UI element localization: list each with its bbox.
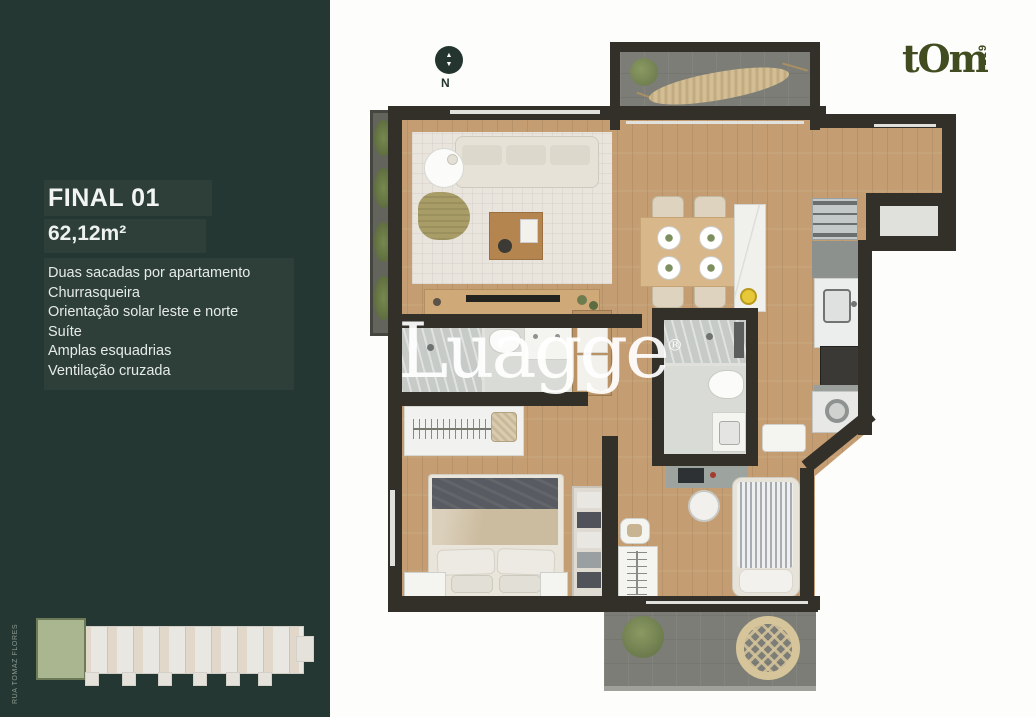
compass-north-label: N [441, 76, 450, 90]
coffee-table [489, 212, 543, 260]
closet-rod [413, 428, 497, 430]
feature-item: Duas sacadas por apartamento [48, 264, 308, 284]
registered-mark: ® [667, 336, 683, 355]
balcony-glass-rail [646, 601, 808, 604]
watermark-text: Luagge [398, 306, 667, 395]
closet-basket [491, 412, 517, 442]
table-decor [498, 239, 512, 253]
left-info-panel: FINAL 01 62,12m² Duas sacadas por aparta… [0, 0, 330, 717]
sofa-cushion [506, 145, 546, 165]
wall [746, 308, 758, 466]
window [880, 206, 938, 236]
place-setting [699, 256, 723, 280]
place-setting [657, 226, 681, 250]
balcony-plant [622, 616, 664, 658]
table-books [520, 219, 538, 243]
shower-head [706, 333, 713, 340]
striped-duvet [737, 482, 793, 568]
laptop [678, 468, 704, 483]
floorplan-sheet: FINAL 01 62,12m² Duas sacadas por aparta… [0, 0, 1036, 717]
keyplan-balcony [122, 672, 136, 686]
nightstand [404, 572, 446, 599]
dining-table [640, 217, 738, 287]
open-shelf-unit [572, 486, 606, 598]
shelf-item [577, 572, 601, 588]
window [390, 490, 395, 566]
window [450, 110, 600, 114]
oven-stack [812, 198, 858, 240]
place-setting [657, 256, 681, 280]
bed-pillow [739, 569, 793, 593]
fridge [812, 241, 858, 278]
shelf-item [577, 552, 601, 568]
feature-item: Amplas esquadrias [48, 342, 308, 362]
closet [404, 406, 524, 456]
wall [800, 468, 814, 604]
single-bed [732, 477, 800, 597]
side-table-decor [447, 154, 458, 165]
social-toilet [708, 370, 744, 399]
street-label: RUA TOMAZ FLORES [12, 612, 26, 704]
compass-icon: ▲▼ [435, 46, 463, 74]
tv [466, 295, 560, 302]
vanity-sink [719, 421, 740, 445]
keyplan-balcony [226, 672, 240, 686]
bed-cushion [451, 575, 493, 593]
feature-list: Duas sacadas por apartamento Churrasquei… [48, 264, 308, 381]
keyplan-highlighted-unit [36, 618, 86, 680]
clothes-rack [618, 546, 658, 600]
wall [602, 436, 618, 610]
desk-decor [710, 472, 716, 478]
wall [652, 454, 758, 466]
brand-logo: tOm [902, 36, 987, 81]
shelf-item [577, 492, 601, 508]
side-table [424, 148, 464, 188]
feature-item: Ventilação cruzada [48, 362, 308, 382]
potted-plant [630, 58, 658, 86]
keyplan-balcony [158, 672, 172, 686]
fruit-bowl [740, 288, 757, 305]
keyplan-end-stub [296, 636, 314, 662]
chair-seat [627, 524, 642, 537]
developer-watermark: Luagge® [398, 306, 683, 395]
desk-chair [688, 490, 720, 522]
console-decor [433, 298, 441, 306]
balcony-glass-rail [626, 121, 804, 124]
kitchen-sink [823, 289, 851, 323]
washer-door [825, 399, 849, 423]
brand-unit-number: 219 [977, 44, 989, 65]
feature-item: Churrasqueira [48, 284, 308, 304]
small-chair [620, 518, 650, 544]
balcony-top-wall [610, 42, 820, 52]
rattan-chair [736, 616, 800, 680]
laundry-tank [762, 424, 806, 452]
shelf-item [577, 532, 601, 548]
balcony-edge [604, 686, 816, 691]
bed-cushion [499, 575, 541, 593]
unit-title: FINAL 01 [48, 184, 160, 213]
window-track [874, 124, 936, 127]
keyplan-balcony [193, 672, 207, 686]
shelf-item [577, 512, 601, 528]
nightstand [540, 572, 568, 599]
keyplan-building-strip [80, 626, 304, 674]
sofa [455, 136, 599, 188]
unit-area: 62,12m² [48, 222, 126, 246]
sofa-cushion [550, 145, 590, 165]
sofa-cushion [462, 145, 502, 165]
kitchen-counter [814, 278, 862, 348]
place-setting [699, 226, 723, 250]
faucet [851, 301, 857, 307]
console-plant [577, 295, 587, 305]
wall [858, 240, 872, 435]
rack-hangers [627, 551, 647, 595]
social-vanity [712, 412, 746, 452]
lounge-chair [418, 192, 470, 240]
keyplan-balcony [85, 672, 99, 686]
shower-niche [734, 322, 744, 358]
feature-item: Suíte [48, 323, 308, 343]
keyplan-balcony [258, 672, 272, 686]
feature-item: Orientação solar leste e norte [48, 303, 308, 323]
bed-blanket [432, 509, 558, 545]
